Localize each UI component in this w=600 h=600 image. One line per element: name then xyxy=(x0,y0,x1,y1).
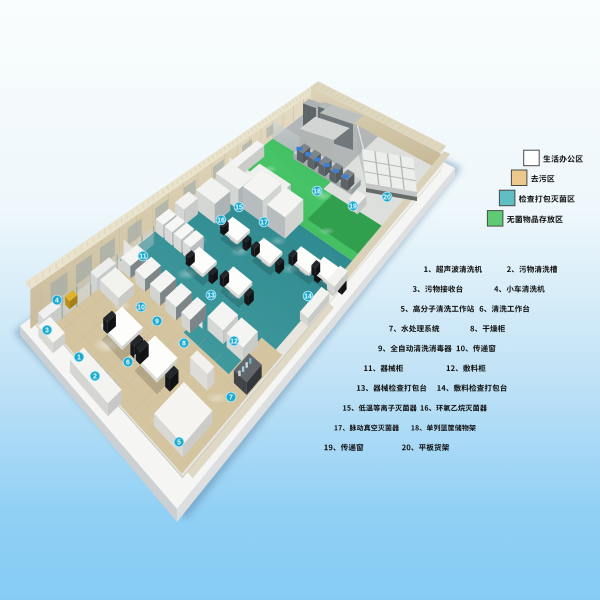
svg-text:9: 9 xyxy=(155,319,159,326)
svg-text:6: 6 xyxy=(126,360,130,367)
svg-text:14: 14 xyxy=(304,294,312,301)
svg-text:1: 1 xyxy=(77,355,81,362)
svg-text:16: 16 xyxy=(217,218,225,225)
svg-text:18: 18 xyxy=(313,189,321,196)
svg-text:3: 3 xyxy=(45,328,49,335)
svg-text:12: 12 xyxy=(230,339,238,346)
svg-text:2: 2 xyxy=(93,374,97,381)
svg-text:15: 15 xyxy=(235,205,243,212)
svg-text:5: 5 xyxy=(177,440,181,447)
svg-text:10: 10 xyxy=(137,305,145,312)
svg-text:13: 13 xyxy=(207,293,215,300)
svg-text:7: 7 xyxy=(229,395,233,402)
svg-text:17: 17 xyxy=(260,220,268,227)
svg-text:4: 4 xyxy=(55,298,59,305)
svg-text:19: 19 xyxy=(349,204,357,211)
svg-text:8: 8 xyxy=(182,341,186,348)
svg-text:20: 20 xyxy=(383,195,391,202)
svg-text:11: 11 xyxy=(139,254,147,261)
